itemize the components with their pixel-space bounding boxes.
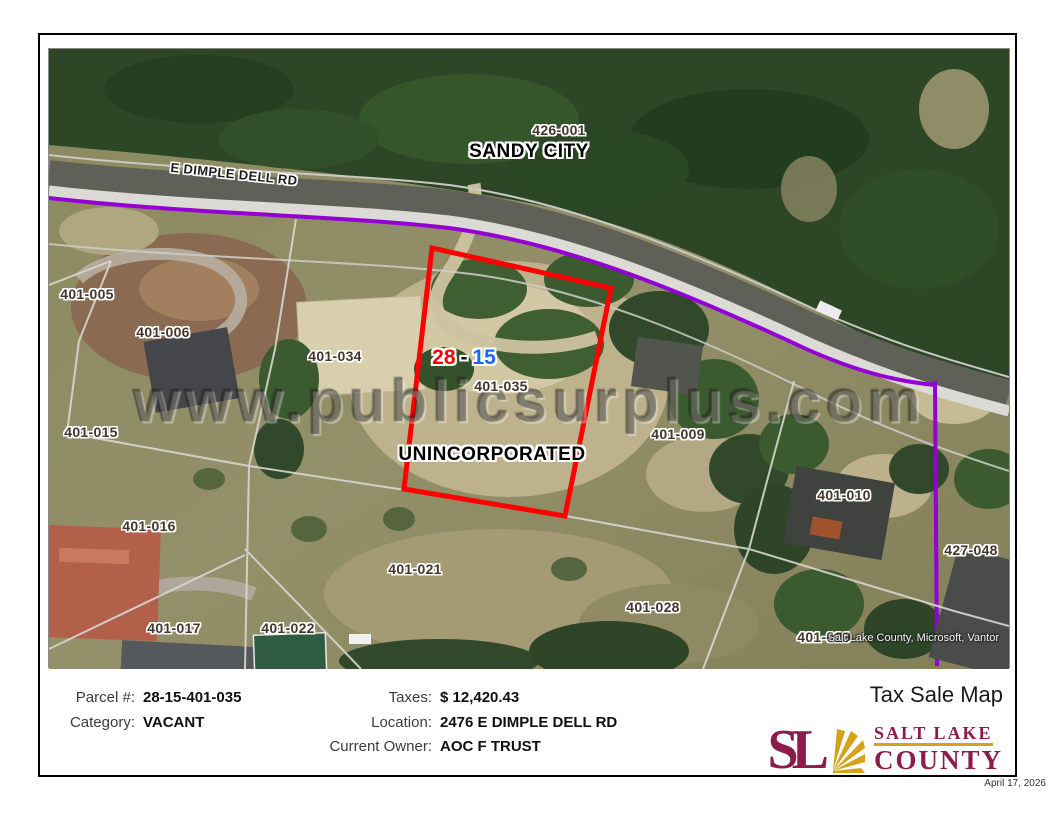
parcel-label-401-010: 401-010 [817,487,870,503]
book-number: 28 [432,346,455,369]
field-value: 2476 E DIMPLE DELL RD [440,711,617,736]
field-label: Current Owner: [280,735,432,760]
field-value: VACANT [143,711,204,736]
parcel-label-401-022: 401-022 [261,620,314,636]
parcel-label-401-017: 401-017 [147,620,200,636]
salt-lake-county-logo: SL SALT LAKE COUNTY [767,721,1003,773]
imagery-attribution: Salt Lake County, Microsoft, Vantor [828,632,999,644]
info-row: Parcel #:28-15-401-035 [40,686,241,711]
field-value: 28-15-401-035 [143,686,241,711]
info-panel: Parcel #:28-15-401-035Category:VACANT Ta… [40,668,1011,771]
field-label: Category: [40,711,135,736]
tax-sale-map-page: www.publicsurplus.com 426-001401-005401-… [0,0,1056,816]
parcel-label-401-028: 401-028 [626,599,679,615]
field-label: Parcel #: [40,686,135,711]
parcel-label-401-021: 401-021 [388,561,441,577]
parcel-label-427-048: 427-048 [944,542,997,558]
parcel-label-426-001: 426-001 [532,122,585,138]
info-row: Current Owner:AOC F TRUST [280,735,617,760]
field-value: AOC F TRUST [440,735,541,760]
sunburst-icon [830,727,866,773]
aerial-map: www.publicsurplus.com 426-001401-005401-… [48,48,1010,670]
info-fields-left: Parcel #:28-15-401-035Category:VACANT [40,686,241,735]
area-label: UNINCORPORATED [398,444,585,466]
parcel-label-401-015: 401-015 [64,424,117,440]
parcel-label-401-009: 401-009 [651,426,704,442]
parcel-label-401-005: 401-005 [60,286,113,302]
parcel-label-401-006: 401-006 [136,324,189,340]
page-title: Tax Sale Map [870,682,1003,708]
parcel-label-401-035: 401-035 [474,378,527,394]
info-row: Taxes:$ 12,420.43 [280,686,617,711]
info-row: Category:VACANT [40,711,241,736]
logo-monogram: SL [767,727,830,773]
info-fields-right: Taxes:$ 12,420.43Location:2476 E DIMPLE … [280,686,617,760]
page-number: 15 [473,346,496,369]
print-date: April 17, 2026 [984,778,1046,789]
parcel-label-401-016: 401-016 [122,518,175,534]
logo-line2: COUNTY [874,747,1003,773]
field-label: Taxes: [280,686,432,711]
field-value: $ 12,420.43 [440,686,519,711]
parcel-label-401-034: 401-034 [308,348,361,364]
logo-line1: SALT LAKE [874,724,993,746]
info-row: Location:2476 E DIMPLE DELL RD [280,711,617,736]
parcel-highlight-label: 28-15 [432,346,496,370]
book-page-separator: - [461,346,468,369]
city-label: SANDY CITY [469,141,589,163]
field-label: Location: [280,711,432,736]
map-frame: www.publicsurplus.com 426-001401-005401-… [38,33,1017,777]
logo-wordmark: SALT LAKE COUNTY [874,724,1003,773]
